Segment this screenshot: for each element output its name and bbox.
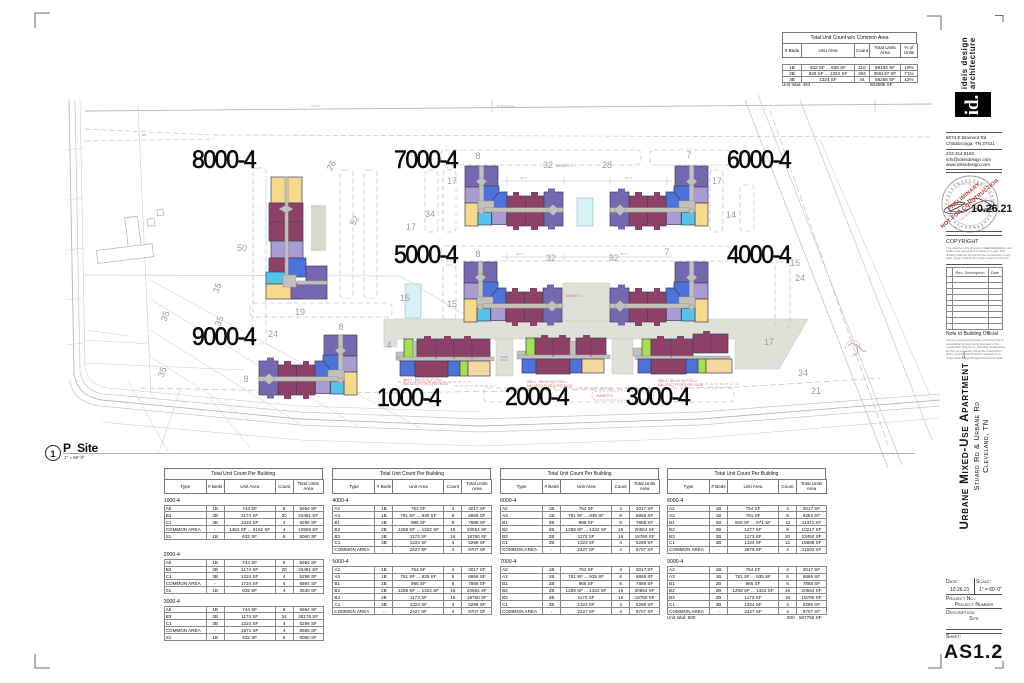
svg-text:P_Site: P_Site [63, 441, 99, 455]
svg-text:14: 14 [726, 210, 736, 220]
svg-text:RD: RD [142, 133, 147, 137]
svg-text:15: 15 [447, 299, 457, 309]
svg-text:8: 8 [243, 374, 248, 384]
svg-text:32: 32 [609, 253, 619, 263]
svg-text:2000-4: 2000-4 [505, 383, 569, 411]
svg-text:AMENITY 2: AMENITY 2 [566, 294, 583, 298]
svg-text:35: 35 [159, 310, 172, 323]
svg-text:17: 17 [447, 176, 457, 186]
svg-text:60'-0": 60'-0" [520, 176, 528, 180]
svg-text:7: 7 [664, 247, 669, 257]
svg-text:60'-0": 60'-0" [516, 252, 524, 256]
svg-text:28: 28 [602, 160, 612, 170]
svg-text:8: 8 [338, 322, 343, 332]
svg-text:6000-4: 6000-4 [727, 146, 791, 174]
svg-text:26: 26 [325, 159, 339, 173]
svg-text:N 88 12 33 E: N 88 12 33 E [497, 104, 515, 108]
svg-text:7000-4: 7000-4 [394, 146, 458, 174]
svg-text:35: 35 [156, 366, 169, 379]
svg-text:AMENITY 3: AMENITY 3 [596, 394, 613, 398]
svg-text:15: 15 [790, 258, 800, 268]
svg-text:8000-4: 8000-4 [192, 146, 256, 174]
svg-text:AMENITY 1: AMENITY 1 [556, 164, 573, 168]
svg-text:8: 8 [475, 249, 480, 259]
svg-text:1000-4: 1000-4 [377, 384, 441, 412]
svg-text:VINICIO I. LIF: VINICIO I. LIF [952, 182, 987, 186]
svg-text:34: 34 [425, 209, 435, 219]
svg-text:17: 17 [406, 222, 416, 232]
svg-text:32: 32 [546, 253, 556, 263]
svg-text:9000-4: 9000-4 [192, 323, 256, 351]
svg-text:24: 24 [268, 329, 278, 339]
svg-text:5000-4: 5000-4 [394, 241, 458, 269]
svg-text:24: 24 [795, 273, 805, 283]
svg-text:35: 35 [211, 282, 224, 295]
svg-text:50: 50 [237, 243, 247, 253]
svg-text:19: 19 [295, 307, 305, 317]
svg-text:8: 8 [475, 151, 480, 161]
svg-text:7: 7 [686, 150, 691, 160]
svg-text:32: 32 [543, 160, 553, 170]
svg-text:POOL: POOL [501, 359, 509, 362]
svg-text:17: 17 [712, 176, 722, 186]
svg-text:1190.33: 1190.33 [310, 104, 321, 108]
svg-text:17: 17 [764, 337, 774, 347]
svg-text:3000-4: 3000-4 [626, 383, 690, 411]
svg-text:RD: RD [862, 349, 867, 353]
svg-text:52: 52 [348, 214, 362, 228]
svg-text:1" = 60'-0": 1" = 60'-0" [64, 455, 85, 460]
svg-text:4000-4: 4000-4 [727, 241, 791, 269]
svg-text:4: 4 [386, 340, 391, 350]
svg-text:OF TENNE: OF TENNE [954, 225, 986, 230]
svg-text:21: 21 [811, 386, 821, 396]
svg-text:15: 15 [400, 293, 410, 303]
svg-text:34: 34 [798, 368, 808, 378]
svg-text:60'-0": 60'-0" [625, 176, 633, 180]
svg-text:1: 1 [50, 449, 55, 459]
svg-text:60'-0": 60'-0" [620, 252, 628, 256]
